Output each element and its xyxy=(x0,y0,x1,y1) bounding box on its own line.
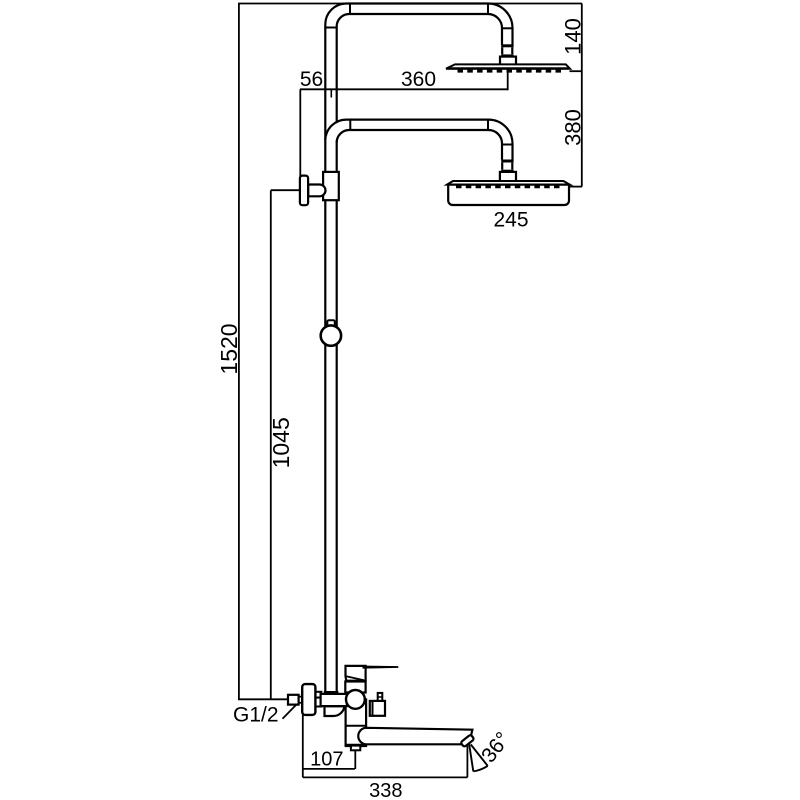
svg-text:380: 380 xyxy=(561,109,586,146)
svg-text:G1/2: G1/2 xyxy=(233,704,279,727)
svg-text:338: 338 xyxy=(369,780,402,800)
svg-text:107: 107 xyxy=(310,748,343,770)
svg-text:245: 245 xyxy=(493,209,528,232)
svg-text:360: 360 xyxy=(401,68,436,91)
svg-text:140: 140 xyxy=(561,18,586,55)
svg-text:1520: 1520 xyxy=(216,323,242,374)
svg-text:56: 56 xyxy=(300,68,323,91)
svg-text:1045: 1045 xyxy=(268,417,294,468)
